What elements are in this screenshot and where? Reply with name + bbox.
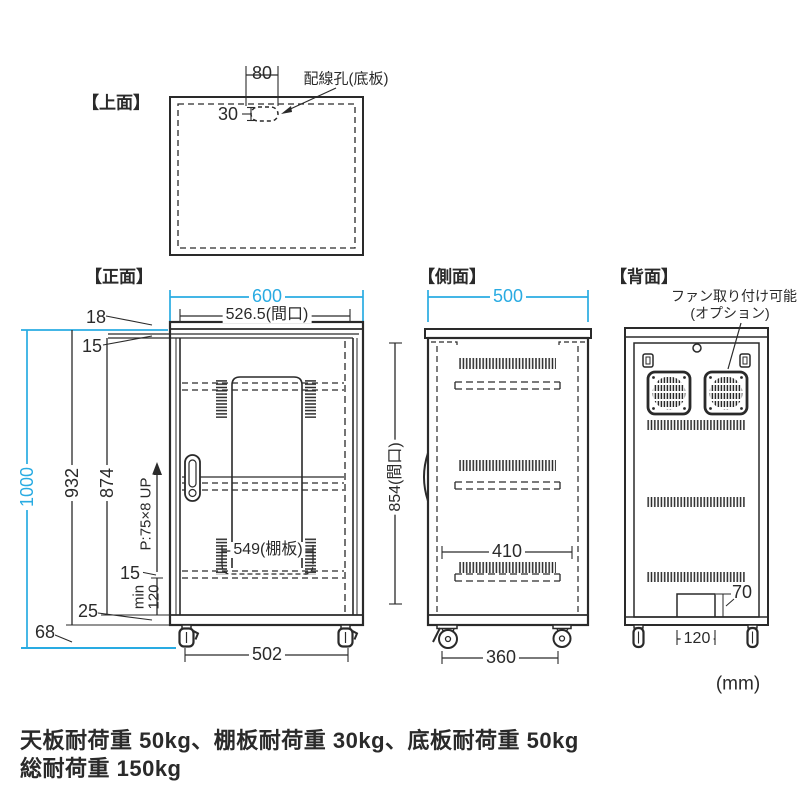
dim-opening-height: 854(間口) [388, 439, 404, 514]
top-view-title: 【上面】 [82, 95, 150, 112]
side-right-caster [553, 625, 571, 647]
front-right-caster [339, 625, 358, 647]
dim-overall-width: 600 [249, 287, 285, 305]
load-capacity-note: 天板耐荷重 50kg、棚板耐荷重 30kg、底板耐荷重 50kg [20, 730, 579, 752]
wiring-hole [251, 107, 278, 121]
total-capacity-note: 総耐荷重 150kg [20, 758, 182, 780]
dim-shelf-width: 549(棚板) [230, 542, 305, 558]
front-left-caster [180, 625, 199, 647]
side-left-caster [433, 625, 457, 648]
dim-body-height: 932 [63, 465, 81, 501]
back-latch-left [643, 354, 653, 367]
shelf-pitch-label: P:75×8 UP [139, 475, 154, 554]
dim-shelf-thickness: 15 [117, 564, 143, 582]
dim-top-gap: 15 [82, 337, 102, 355]
fan-callout-line2: (オプション) [690, 306, 769, 320]
dim-hole-width: 80 [252, 64, 272, 82]
dim-overall-height: 1000 [18, 464, 36, 510]
back-hole [693, 344, 701, 352]
dim-inner-depth: 410 [489, 542, 525, 560]
top-view-drawing [170, 66, 363, 255]
pitch-rail-hatch [216, 380, 227, 418]
front-view-title: 【正面】 [85, 269, 153, 286]
fan-grille-right [705, 372, 747, 414]
fan-callout-line1: ファン取り付け可能 [671, 289, 797, 303]
side-view-title: 【側面】 [418, 269, 486, 286]
min-label: min [132, 585, 147, 609]
back-latch-right [740, 354, 750, 367]
dim-opening-width: 526.5(間口) [223, 307, 312, 323]
dim-notch-width: 120 [681, 631, 714, 647]
dim-front-caster-span: 502 [249, 645, 285, 663]
dim-base-height: 25 [78, 602, 98, 620]
wiring-hole-callout: 配線孔(底板) [304, 72, 389, 87]
dim-caster-height: 68 [35, 623, 55, 641]
cabinet-technical-drawing: 【上面】 80 30 配線孔(底板) 【正面】 600 526.5(間口) 18… [0, 0, 800, 800]
back-view-title: 【背面】 [610, 269, 678, 286]
back-right-caster [748, 625, 758, 647]
back-left-caster [634, 625, 644, 647]
dim-notch-height: 70 [732, 583, 752, 601]
side-view-drawing [389, 290, 591, 664]
side-vent-row [458, 358, 556, 369]
fan-grille-left [648, 372, 690, 414]
back-vent-row [646, 420, 746, 430]
drawing-linework [0, 0, 800, 800]
dim-min-height: 120 [147, 584, 162, 609]
door-handle [185, 455, 200, 501]
dim-top-panel: 18 [86, 308, 106, 326]
unit-label: (mm) [716, 675, 760, 694]
dim-side-caster-span: 360 [483, 648, 519, 666]
dim-hole-offset: 30 [218, 105, 238, 123]
dim-overall-depth: 500 [490, 287, 526, 305]
dim-inner-height: 874 [98, 465, 116, 501]
